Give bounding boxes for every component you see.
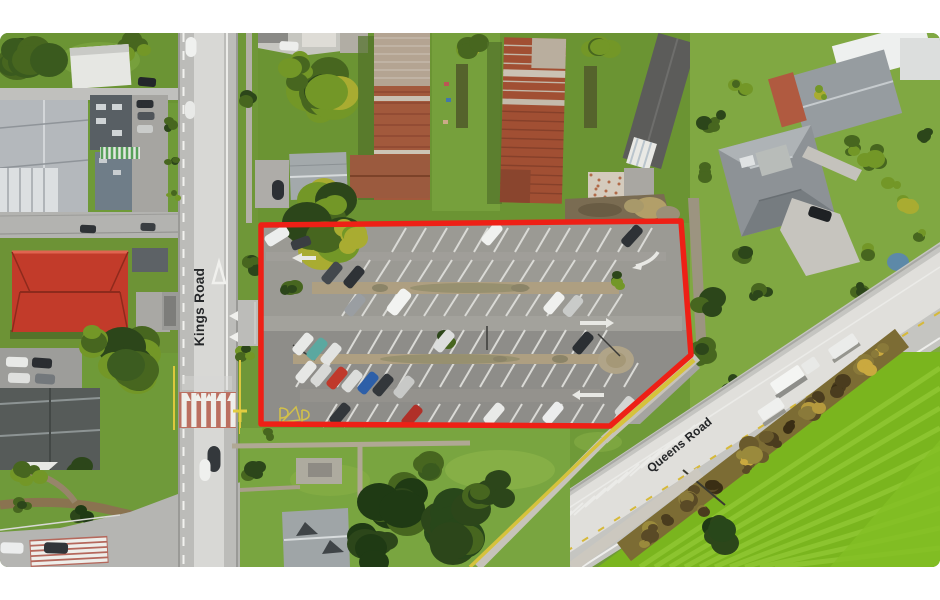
svg-text:Kings Road: Kings Road — [192, 268, 207, 347]
